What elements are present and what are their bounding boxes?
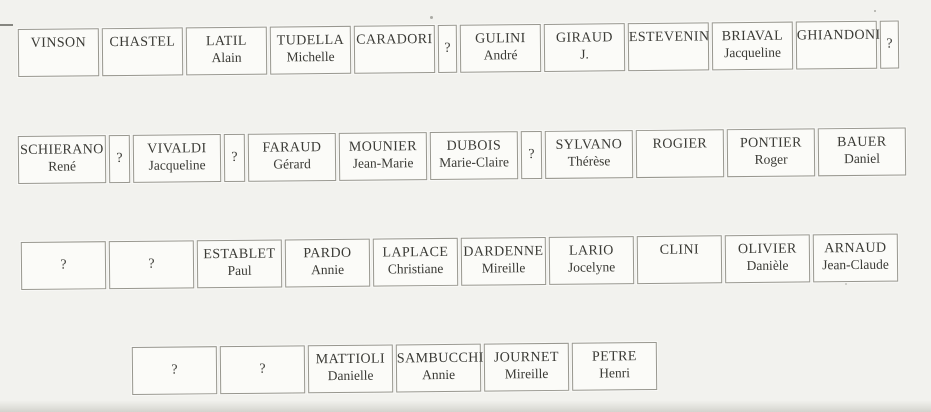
question-mark-label: ? (60, 258, 66, 274)
surname-label: PETRE (573, 348, 656, 366)
surname-label: ARNAUD (814, 240, 897, 258)
name-box: DARDENNEMireille (461, 237, 546, 286)
firstname-label: René (19, 158, 105, 175)
name-box: GULINIAndré (460, 24, 541, 73)
firstname-label: Alain (187, 50, 266, 67)
firstname-label: André (461, 47, 540, 64)
firstname-label: Annie (286, 262, 369, 279)
name-box: ROGIER (636, 129, 724, 178)
surname-label: BAUER (819, 133, 905, 151)
scan-bottom-edge (0, 400, 931, 412)
surname-label: ESTEVENIN (629, 28, 708, 46)
surname-label: TUDELLA (271, 32, 350, 50)
scan-artifact-mark (0, 24, 13, 26)
surname-label: DARDENNE (462, 243, 545, 261)
surname-label: PARDO (286, 245, 369, 263)
unknown-name-box: ? (220, 345, 305, 394)
name-box: PETREHenri (572, 342, 657, 391)
name-box: DUBOISMarie-Claire (430, 131, 518, 180)
name-row: SCHIERANORené?VIVALDIJacqueline?FARAUDGé… (18, 127, 906, 184)
name-box: SYLVANOThérèse (545, 130, 633, 179)
question-mark-label: ? (444, 41, 450, 57)
surname-label: GULINI (461, 30, 540, 48)
surname-label: ROGIER (637, 135, 723, 153)
surname-label: VINSON (19, 34, 98, 52)
surname-label: LARIO (550, 242, 633, 260)
firstname-label: Michelle (271, 49, 350, 66)
firstname-label: J. (545, 46, 624, 63)
unknown-name-box: ? (438, 25, 457, 73)
name-box: SAMBUCCHIAnnie (396, 344, 481, 393)
firstname-label: Jocelyne (550, 259, 633, 276)
surname-label: VIVALDI (134, 140, 220, 158)
unknown-name-box: ? (109, 135, 130, 183)
question-mark-label: ? (528, 147, 534, 163)
firstname-label: Jacqueline (134, 157, 220, 174)
question-mark-label: ? (148, 257, 154, 273)
name-box: CARADORI (354, 25, 435, 74)
firstname-label: Mireille (485, 366, 568, 383)
surname-label: FARAUD (249, 139, 335, 157)
name-box: CLINI (637, 235, 722, 284)
firstname-label: Gérard (249, 156, 335, 173)
surname-label: LATIL (187, 33, 266, 51)
firstname-label: Danielle (309, 368, 392, 385)
scan-speckle (845, 283, 847, 285)
name-box: PARDOAnnie (285, 239, 370, 288)
surname-label: CARADORI (355, 31, 434, 49)
name-box: SCHIERANORené (18, 135, 106, 184)
surname-label: PONTIER (728, 134, 814, 152)
name-box: JOURNETMireille (484, 343, 569, 392)
name-box: BRIAVALJacqueline (712, 22, 793, 71)
surname-label: CHASTEL (103, 33, 182, 51)
surname-label: OLIVIER (726, 240, 809, 258)
surname-label: JOURNET (485, 349, 568, 367)
surname-label: MOUNIER (340, 138, 426, 156)
surname-label: ESTABLET (198, 246, 281, 264)
firstname-label: Danièle (726, 257, 809, 274)
surname-label: SYLVANO (546, 136, 632, 154)
scanned-sheet: VINSONCHASTELLATILAlainTUDELLAMichelleCA… (0, 0, 931, 412)
firstname-label: Daniel (819, 150, 905, 167)
firstname-label: Henri (573, 365, 656, 382)
firstname-label: Thérèse (546, 153, 632, 170)
firstname-label: Jacqueline (713, 45, 792, 62)
unknown-name-box: ? (132, 346, 217, 395)
surname-label: SAMBUCCHI (397, 350, 480, 368)
name-row: ??ESTABLETPaulPARDOAnnieLAPLACEChristian… (21, 234, 898, 290)
name-box: ARNAUDJean-Claude (813, 234, 898, 283)
scan-speckle (430, 16, 433, 19)
name-box: GHIANDONI (796, 21, 877, 70)
firstname-label: Paul (198, 263, 281, 280)
name-box: CHASTEL (102, 27, 183, 76)
unknown-name-box: ? (521, 131, 542, 179)
surname-label: SCHIERANO (19, 141, 105, 159)
name-row: ??MATTIOLIDanielleSAMBUCCHIAnnieJOURNETM… (132, 342, 657, 395)
name-box: FARAUDGérard (248, 133, 336, 182)
surname-label: CLINI (638, 241, 721, 259)
question-mark-label: ? (886, 37, 892, 53)
firstname-label: Jean-Marie (340, 155, 426, 172)
firstname-label: Annie (397, 367, 480, 384)
surname-label: DUBOIS (431, 137, 517, 155)
firstname-label: Christiane (374, 261, 457, 278)
name-box: PONTIERRoger (727, 128, 815, 177)
surname-label: GIRAUD (545, 29, 624, 47)
name-box: OLIVIERDanièle (725, 234, 810, 283)
firstname-label: Marie-Claire (431, 154, 517, 171)
name-box: LARIOJocelyne (549, 236, 634, 285)
name-box: TUDELLAMichelle (270, 26, 351, 75)
question-mark-label: ? (171, 363, 177, 379)
name-box: VINSON (18, 28, 99, 77)
name-box: BAUERDaniel (818, 127, 906, 176)
surname-label: MATTIOLI (309, 351, 392, 369)
unknown-name-box: ? (109, 240, 194, 289)
name-box: GIRAUDJ. (544, 23, 625, 72)
scan-speckle (874, 10, 876, 12)
surname-label: LAPLACE (374, 244, 457, 262)
name-box: LATILAlain (186, 27, 267, 76)
unknown-name-box: ? (880, 21, 899, 69)
name-row: VINSONCHASTELLATILAlainTUDELLAMichelleCA… (18, 21, 899, 77)
question-mark-label: ? (259, 362, 265, 378)
name-box: MOUNIERJean-Marie (339, 132, 427, 181)
unknown-name-box: ? (224, 134, 245, 182)
unknown-name-box: ? (21, 241, 106, 290)
name-box: VIVALDIJacqueline (133, 134, 221, 183)
question-mark-label: ? (116, 151, 122, 167)
firstname-label: Jean-Claude (814, 257, 897, 274)
name-box: ESTEVENIN (628, 22, 709, 71)
surname-label: GHIANDONI (797, 27, 876, 45)
name-box: MATTIOLIDanielle (308, 344, 393, 393)
firstname-label: Mireille (462, 260, 545, 277)
question-mark-label: ? (231, 150, 237, 166)
firstname-label: Roger (728, 151, 814, 168)
name-box: LAPLACEChristiane (373, 238, 458, 287)
name-box: ESTABLETPaul (197, 239, 282, 288)
surname-label: BRIAVAL (713, 28, 792, 46)
